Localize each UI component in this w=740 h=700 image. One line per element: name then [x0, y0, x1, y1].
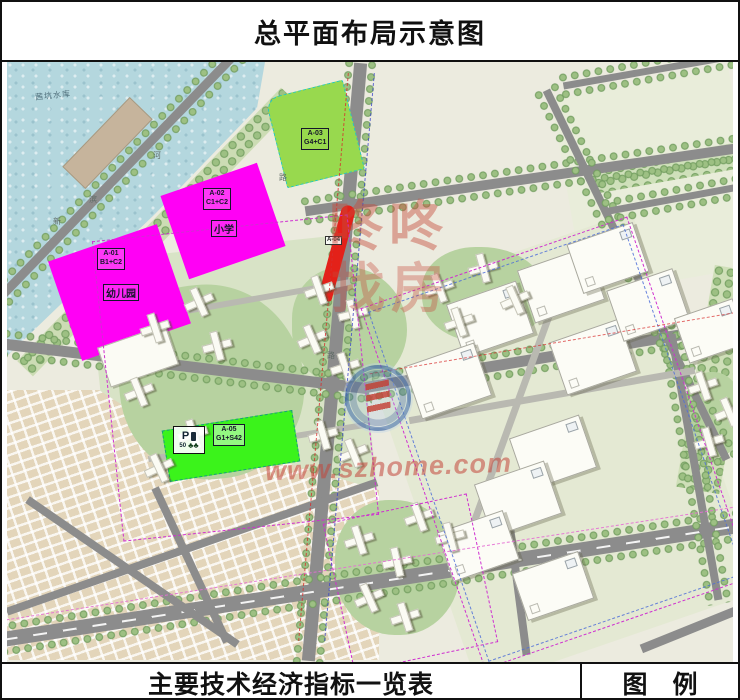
- footer-table: 主要技术经济指标一览表 图 例: [2, 662, 738, 700]
- parcel-code-a02: A-02C1+C2: [203, 188, 231, 210]
- parcel-sublabel-a02: 小学: [211, 220, 237, 237]
- parking-sign: P 50 ♣♣: [173, 426, 205, 454]
- watermark-char: 咚: [329, 200, 383, 254]
- parcel-code-a01: A-01B1+C2: [97, 248, 125, 270]
- parcel-code-a03: A-03G4+C1: [301, 128, 329, 150]
- title-bar: 总平面布局示意图: [2, 2, 738, 62]
- parcel-code-a05: A-05G1+S42: [213, 424, 245, 446]
- legend-title-cell: 图 例: [580, 664, 738, 700]
- parcel-sublabel-a01: 幼儿园: [103, 284, 139, 301]
- road-name-char: 河: [153, 150, 161, 161]
- indicators-title-cell: 主要技术经济指标一览表: [2, 664, 580, 700]
- watermark-char: 房: [391, 262, 445, 316]
- road-name-char: 新: [53, 216, 61, 227]
- watermark-char: 找: [331, 262, 385, 316]
- ev-charger-icon: [191, 432, 196, 441]
- parking-p-icon: P: [182, 431, 189, 442]
- legend-title: 图 例: [622, 665, 697, 700]
- page-title: 总平面布局示意图: [254, 12, 486, 51]
- watermark-logo: [345, 365, 411, 431]
- road-name-char: 路: [279, 172, 287, 183]
- watermark-char: 咚: [389, 200, 443, 254]
- road-name-char: 滨: [89, 194, 97, 205]
- logo-glyph: [365, 379, 391, 414]
- tree-icons: ♣♣: [188, 442, 199, 450]
- road-name-char: 路: [327, 350, 335, 361]
- map-wrap: 茜坑水库 河 滨 新 路 路 A-01B1+C2 幼儿园 A-02C1+C2 小…: [2, 62, 738, 662]
- parking-count: 50: [179, 443, 186, 449]
- boundary-residential-south: [323, 493, 498, 662]
- drawing-sheet: 总平面布局示意图: [0, 0, 740, 700]
- indicators-title: 主要技术经济指标一览表: [148, 665, 434, 700]
- site-plan-map: 茜坑水库 河 滨 新 路 路 A-01B1+C2 幼儿园 A-02C1+C2 小…: [7, 62, 733, 662]
